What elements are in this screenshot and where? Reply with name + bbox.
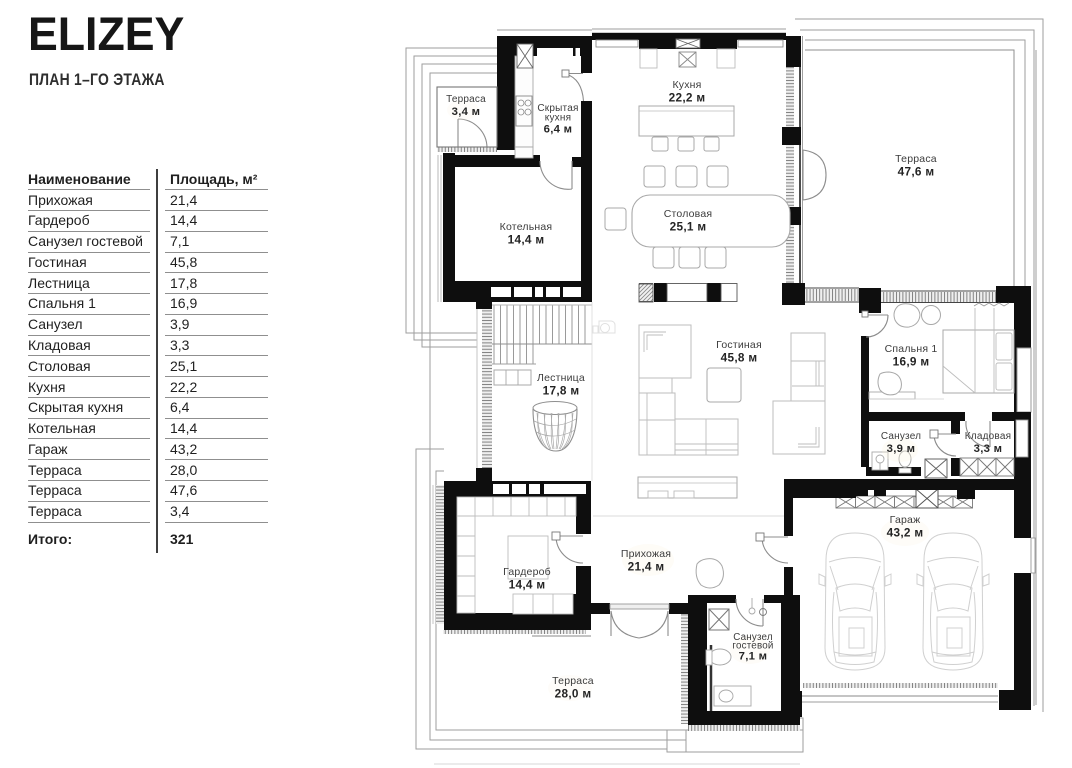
svg-text:Кладовая: Кладовая xyxy=(965,431,1011,442)
svg-text:43,2 м: 43,2 м xyxy=(887,525,924,539)
svg-text:Санузел: Санузел xyxy=(881,431,921,442)
svg-text:6,4 м: 6,4 м xyxy=(544,124,573,136)
svg-text:Прихожая: Прихожая xyxy=(621,548,671,560)
svg-text:14,4 м: 14,4 м xyxy=(508,232,545,246)
svg-text:16,9 м: 16,9 м xyxy=(893,354,930,368)
svg-text:Гараж: Гараж xyxy=(890,514,921,526)
svg-text:45,8 м: 45,8 м xyxy=(721,350,758,364)
svg-text:Лестница: Лестница xyxy=(537,372,585,384)
svg-text:Гардероб: Гардероб xyxy=(503,566,551,578)
svg-text:47,6 м: 47,6 м xyxy=(898,164,935,178)
svg-text:Терраса: Терраса xyxy=(446,94,486,105)
svg-text:Столовая: Столовая xyxy=(664,208,713,220)
svg-text:22,2 м: 22,2 м xyxy=(669,90,706,104)
svg-text:21,4 м: 21,4 м xyxy=(628,559,665,573)
svg-text:Гостиная: Гостиная xyxy=(716,339,762,351)
svg-text:Терраса: Терраса xyxy=(552,675,594,687)
svg-text:25,1 м: 25,1 м xyxy=(670,219,707,233)
svg-text:Терраса: Терраса xyxy=(895,153,937,165)
svg-text:3,4 м: 3,4 м xyxy=(452,106,481,118)
svg-text:кухня: кухня xyxy=(545,113,571,124)
svg-text:28,0 м: 28,0 м xyxy=(555,686,592,700)
svg-text:3,3 м: 3,3 м xyxy=(974,443,1003,455)
svg-text:17,8 м: 17,8 м xyxy=(543,383,580,397)
svg-text:Кухня: Кухня xyxy=(672,79,701,91)
svg-text:3,9 м: 3,9 м xyxy=(887,443,916,455)
svg-text:Котельная: Котельная xyxy=(500,221,553,233)
svg-text:14,4 м: 14,4 м xyxy=(509,577,546,591)
svg-text:Спальня 1: Спальня 1 xyxy=(885,343,938,355)
svg-text:7,1 м: 7,1 м xyxy=(739,650,768,662)
